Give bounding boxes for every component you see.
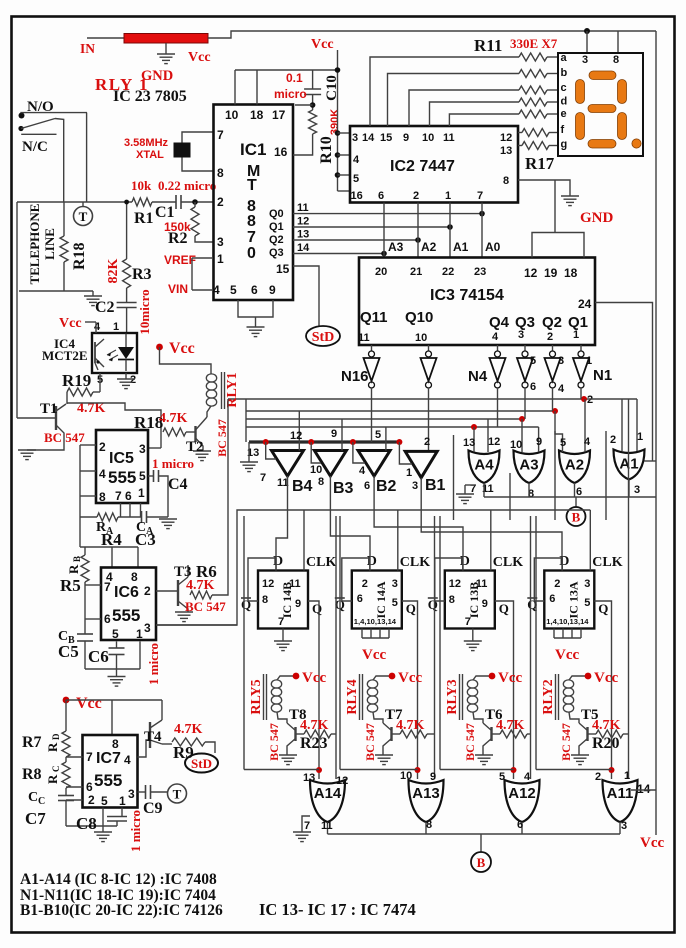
svg-text:15: 15 <box>276 262 290 276</box>
svg-text:StD: StD <box>312 330 335 345</box>
svg-text:IC 13A: IC 13A <box>566 581 580 618</box>
svg-text:11: 11 <box>289 578 301 590</box>
svg-text:A13: A13 <box>412 785 440 802</box>
svg-text:1: 1 <box>637 431 643 443</box>
svg-text:5: 5 <box>392 597 398 609</box>
svg-text:11: 11 <box>321 820 333 832</box>
svg-text:C: C <box>38 796 45 807</box>
svg-text:5: 5 <box>230 283 237 297</box>
svg-text:T4: T4 <box>144 729 162 745</box>
svg-text:R8: R8 <box>22 766 42 783</box>
svg-text:12: 12 <box>297 216 309 228</box>
svg-text:A3: A3 <box>388 240 404 254</box>
svg-text:9: 9 <box>331 428 337 440</box>
svg-text:4: 4 <box>492 331 499 343</box>
svg-text:12: 12 <box>524 266 538 280</box>
svg-text:T1: T1 <box>40 401 58 417</box>
svg-text:micro: micro <box>274 87 307 101</box>
svg-text:0.1: 0.1 <box>286 71 303 85</box>
svg-text:RLY4: RLY4 <box>345 679 360 714</box>
svg-text:10: 10 <box>225 108 239 122</box>
svg-text:5: 5 <box>112 627 119 641</box>
svg-text:1: 1 <box>113 321 119 333</box>
svg-text:Q11: Q11 <box>360 309 388 326</box>
svg-text:D: D <box>367 554 377 569</box>
svg-text:RLY5: RLY5 <box>249 679 264 714</box>
svg-text:A2: A2 <box>565 457 584 474</box>
svg-text:T2: T2 <box>186 439 204 455</box>
svg-text:b: b <box>561 67 568 79</box>
svg-text:4: 4 <box>353 154 360 166</box>
svg-text:11: 11 <box>297 202 309 214</box>
svg-text:C: C <box>51 766 61 773</box>
svg-text:5: 5 <box>353 173 359 185</box>
svg-text:B1: B1 <box>425 477 446 494</box>
svg-text:4: 4 <box>584 436 591 448</box>
svg-text:24: 24 <box>578 297 592 311</box>
svg-text:R20: R20 <box>592 735 620 752</box>
svg-text:14: 14 <box>297 242 310 254</box>
svg-text:VREF: VREF <box>164 253 196 267</box>
svg-text:5: 5 <box>101 794 108 808</box>
svg-text:7: 7 <box>217 128 224 142</box>
svg-text:6: 6 <box>251 283 258 297</box>
svg-text:7: 7 <box>260 472 266 484</box>
svg-text:2: 2 <box>595 771 601 783</box>
svg-text:21: 21 <box>410 266 422 278</box>
svg-text:Vcc: Vcc <box>169 340 195 357</box>
svg-text:2: 2 <box>547 331 553 343</box>
svg-text:A2: A2 <box>421 240 437 254</box>
svg-text:A1: A1 <box>453 240 469 254</box>
svg-text:IC2 7447: IC2 7447 <box>390 158 455 175</box>
svg-text:5: 5 <box>375 429 381 441</box>
svg-text:19: 19 <box>544 266 558 280</box>
svg-text:10: 10 <box>415 332 427 344</box>
svg-text:Q1: Q1 <box>269 221 284 233</box>
svg-text:C: C <box>28 790 38 805</box>
svg-text:B: B <box>477 855 486 870</box>
svg-text:6: 6 <box>125 489 132 503</box>
svg-text:IC 13- IC 17 : IC 7474: IC 13- IC 17 : IC 7474 <box>259 900 416 919</box>
svg-text:9: 9 <box>482 598 488 610</box>
svg-text:RLY1: RLY1 <box>225 372 240 407</box>
svg-text:6: 6 <box>549 593 555 605</box>
svg-text:Vcc: Vcc <box>59 316 82 331</box>
svg-text:4: 4 <box>558 383 565 395</box>
svg-text:d: d <box>561 96 568 108</box>
svg-text:T: T <box>79 209 88 224</box>
svg-text:0: 0 <box>247 245 256 262</box>
svg-text:7: 7 <box>115 489 122 503</box>
svg-text:D: D <box>460 554 470 569</box>
svg-text:e: e <box>561 108 567 120</box>
svg-text:C5: C5 <box>58 642 79 661</box>
svg-text:13: 13 <box>303 772 315 784</box>
svg-text:6: 6 <box>517 819 523 831</box>
svg-text:330E X7: 330E X7 <box>510 36 558 51</box>
svg-text:CLK: CLK <box>592 555 622 570</box>
svg-text:6: 6 <box>86 780 93 794</box>
svg-text:Vcc: Vcc <box>311 37 334 52</box>
svg-text:BC 547: BC 547 <box>44 430 85 445</box>
svg-text:A0: A0 <box>485 240 501 254</box>
svg-text:B3: B3 <box>333 480 354 497</box>
svg-text:BC 547: BC 547 <box>463 723 477 761</box>
svg-text:3: 3 <box>558 355 564 367</box>
svg-text:8: 8 <box>99 490 106 504</box>
svg-text:4.7K: 4.7K <box>159 411 188 426</box>
svg-text:2: 2 <box>413 190 419 202</box>
svg-text:Q: Q <box>312 601 322 616</box>
svg-text:8: 8 <box>262 594 268 606</box>
svg-text:D: D <box>51 733 61 740</box>
svg-text:1: 1 <box>138 486 145 500</box>
svg-text:23: 23 <box>474 266 486 278</box>
svg-text:IC3 74154: IC3 74154 <box>430 287 504 304</box>
svg-text:VIN: VIN <box>168 282 188 296</box>
svg-text:555: 555 <box>108 468 136 487</box>
svg-text:1: 1 <box>624 770 630 782</box>
svg-text:IC1: IC1 <box>240 140 266 159</box>
svg-text:C3: C3 <box>135 530 156 549</box>
svg-text:3: 3 <box>412 480 418 492</box>
svg-text:10k: 10k <box>131 178 152 193</box>
svg-text:Vcc: Vcc <box>398 670 422 686</box>
svg-text:2: 2 <box>99 440 106 454</box>
svg-text:D: D <box>273 554 283 569</box>
svg-text:C8: C8 <box>76 814 97 833</box>
svg-text:T: T <box>247 177 257 194</box>
svg-text:BC 547: BC 547 <box>559 723 573 761</box>
svg-text:13: 13 <box>297 229 309 241</box>
svg-text:8: 8 <box>318 476 324 488</box>
svg-text:17: 17 <box>272 108 286 122</box>
svg-text:8: 8 <box>613 54 619 66</box>
svg-text:BC 547: BC 547 <box>215 419 229 457</box>
svg-text:T: T <box>173 787 182 802</box>
svg-text:5: 5 <box>139 469 146 483</box>
svg-text:16: 16 <box>351 190 363 202</box>
svg-text:g: g <box>561 139 568 151</box>
svg-text:8: 8 <box>503 175 509 187</box>
svg-text:12: 12 <box>290 430 302 442</box>
svg-text:7: 7 <box>104 580 111 594</box>
svg-text:6: 6 <box>378 190 384 202</box>
svg-text:R1: R1 <box>134 210 154 227</box>
svg-text:8: 8 <box>247 213 256 230</box>
svg-text:B: B <box>72 556 82 562</box>
svg-text:C7: C7 <box>25 809 46 828</box>
svg-text:RLY 1: RLY 1 <box>95 75 149 94</box>
svg-text:CLK: CLK <box>493 555 523 570</box>
svg-text:Vcc: Vcc <box>498 670 522 686</box>
svg-text:15: 15 <box>380 132 392 144</box>
svg-text:4.7K: 4.7K <box>174 722 203 737</box>
svg-text:6: 6 <box>104 612 111 626</box>
svg-text:5: 5 <box>499 771 505 783</box>
svg-text:10micro: 10micro <box>137 289 152 334</box>
svg-text:3: 3 <box>584 578 590 590</box>
svg-text:9: 9 <box>403 132 409 144</box>
svg-text:IC7: IC7 <box>96 750 121 767</box>
svg-text:10: 10 <box>510 439 522 451</box>
svg-text:3: 3 <box>217 235 224 249</box>
svg-text:Q3: Q3 <box>269 247 284 259</box>
svg-text:4: 4 <box>524 771 531 783</box>
svg-text:2: 2 <box>587 394 593 406</box>
svg-text:B1-B10(IC 20-IC 22):IC 74126: B1-B10(IC 20-IC 22):IC 74126 <box>20 902 223 919</box>
svg-text:4: 4 <box>359 465 366 477</box>
svg-text:9: 9 <box>536 436 542 448</box>
svg-text:6: 6 <box>530 381 536 393</box>
svg-text:20: 20 <box>375 266 387 278</box>
svg-text:10: 10 <box>400 770 412 782</box>
svg-text:A11: A11 <box>607 785 634 802</box>
svg-text:R23: R23 <box>300 735 328 752</box>
svg-text:Q10: Q10 <box>405 309 433 326</box>
svg-text:R3: R3 <box>132 266 152 283</box>
svg-text:3: 3 <box>128 787 135 801</box>
svg-text:C1: C1 <box>155 204 175 221</box>
svg-text:9: 9 <box>430 771 436 783</box>
svg-text:2: 2 <box>424 436 430 448</box>
svg-text:Q: Q <box>598 601 608 616</box>
svg-text:14: 14 <box>362 132 375 144</box>
svg-text:3: 3 <box>352 132 358 144</box>
svg-text:Vcc: Vcc <box>76 695 102 712</box>
svg-text:C2: C2 <box>95 299 115 316</box>
svg-text:7: 7 <box>278 616 284 628</box>
svg-text:N1: N1 <box>593 367 612 384</box>
svg-text:12: 12 <box>500 132 512 144</box>
svg-text:4: 4 <box>213 283 220 297</box>
svg-text:555: 555 <box>94 771 122 790</box>
svg-text:10: 10 <box>310 464 322 476</box>
svg-text:MCT2E: MCT2E <box>42 348 88 363</box>
svg-text:R4: R4 <box>101 530 122 549</box>
svg-text:18: 18 <box>564 266 578 280</box>
svg-text:IC5: IC5 <box>109 450 134 467</box>
svg-text:7: 7 <box>86 750 93 764</box>
svg-text:R: R <box>45 774 60 784</box>
svg-text:A3: A3 <box>519 457 538 474</box>
svg-text:8: 8 <box>131 570 138 584</box>
svg-text:IN: IN <box>80 41 95 56</box>
svg-text:1: 1 <box>586 355 592 367</box>
svg-text:C4: C4 <box>168 476 188 493</box>
svg-text:1: 1 <box>217 252 224 266</box>
svg-text:22: 22 <box>442 266 454 278</box>
svg-text:IC 14A: IC 14A <box>374 581 388 618</box>
svg-text:8: 8 <box>426 819 432 831</box>
svg-text:R11: R11 <box>474 36 502 55</box>
svg-text:B2: B2 <box>376 478 397 495</box>
svg-text:N16: N16 <box>341 368 369 385</box>
svg-text:RLY3: RLY3 <box>445 679 460 714</box>
svg-text:Q2: Q2 <box>269 234 284 246</box>
svg-text:18: 18 <box>250 108 264 122</box>
svg-text:11: 11 <box>476 578 488 590</box>
svg-text:A12: A12 <box>508 785 536 802</box>
svg-text:R10: R10 <box>318 136 335 164</box>
svg-text:2: 2 <box>217 195 224 209</box>
svg-text:A14: A14 <box>314 785 342 802</box>
svg-text:R17: R17 <box>525 154 555 173</box>
svg-text:R18: R18 <box>71 242 88 270</box>
svg-text:6: 6 <box>576 486 582 498</box>
svg-text:2: 2 <box>610 434 616 446</box>
svg-text:IC6: IC6 <box>114 584 139 601</box>
svg-text:1 micro: 1 micro <box>152 456 194 471</box>
svg-text:Vcc: Vcc <box>362 647 386 663</box>
svg-text:5: 5 <box>530 355 536 367</box>
svg-text:f: f <box>561 124 565 136</box>
svg-text:C9: C9 <box>143 800 163 817</box>
svg-text:D: D <box>559 554 569 569</box>
svg-text:R2: R2 <box>168 230 188 247</box>
svg-text:2: 2 <box>362 578 368 590</box>
svg-text:5: 5 <box>560 437 566 449</box>
svg-text:3: 3 <box>582 54 588 66</box>
svg-text:8: 8 <box>112 737 119 751</box>
svg-text:555: 555 <box>112 606 140 625</box>
svg-text:1 micro: 1 micro <box>146 643 161 685</box>
svg-text:14: 14 <box>637 782 651 796</box>
svg-text:C6: C6 <box>88 647 109 666</box>
svg-text:5: 5 <box>584 597 590 609</box>
svg-text:BC 547: BC 547 <box>363 723 377 761</box>
svg-text:1: 1 <box>119 794 126 808</box>
svg-text:3: 3 <box>144 621 151 635</box>
svg-text:Q: Q <box>241 597 251 612</box>
svg-text:3: 3 <box>392 578 398 590</box>
svg-text:N4: N4 <box>468 368 488 385</box>
svg-text:A1-A14 (IC 8-IC 12) :IC 7408: A1-A14 (IC 8-IC 12) :IC 7408 <box>20 871 217 888</box>
svg-text:2: 2 <box>144 584 151 598</box>
svg-text:R19: R19 <box>62 371 91 390</box>
svg-text:c: c <box>561 82 567 94</box>
svg-text:8: 8 <box>217 166 224 180</box>
svg-text:XTAL: XTAL <box>136 149 164 161</box>
svg-text:6: 6 <box>357 593 363 605</box>
svg-text:3.58MHz: 3.58MHz <box>124 137 169 149</box>
svg-text:16: 16 <box>274 145 288 159</box>
svg-text:R5: R5 <box>60 576 81 595</box>
svg-text:4.7K: 4.7K <box>186 578 215 593</box>
svg-text:RLY2: RLY2 <box>541 679 556 714</box>
svg-text:1: 1 <box>406 467 412 479</box>
svg-text:0.22 micro: 0.22 micro <box>158 178 216 193</box>
svg-text:12: 12 <box>336 775 348 787</box>
svg-text:1: 1 <box>573 329 579 341</box>
svg-text:LINE: LINE <box>42 228 57 260</box>
svg-text:N/C: N/C <box>22 139 48 155</box>
svg-text:4: 4 <box>99 467 106 481</box>
svg-text:1: 1 <box>445 190 451 202</box>
svg-text:BC 547: BC 547 <box>185 599 226 614</box>
svg-text:3: 3 <box>621 820 627 832</box>
svg-text:12: 12 <box>488 436 500 448</box>
svg-text:Q: Q <box>406 601 416 616</box>
svg-text:7: 7 <box>304 820 310 832</box>
svg-text:B: B <box>572 510 581 525</box>
svg-text:7: 7 <box>477 190 483 202</box>
svg-text:12: 12 <box>449 578 461 590</box>
svg-text:R: R <box>66 564 81 574</box>
svg-text:Q: Q <box>499 601 509 616</box>
svg-text:CLK: CLK <box>306 555 336 570</box>
svg-text:7: 7 <box>247 229 256 246</box>
svg-text:BC 547: BC 547 <box>267 723 281 761</box>
svg-text:82K: 82K <box>106 258 121 283</box>
svg-text:A4: A4 <box>474 457 494 474</box>
svg-text:1,4,10,13,14: 1,4,10,13,14 <box>354 617 397 626</box>
svg-text:4: 4 <box>94 321 101 333</box>
svg-text:Vcc: Vcc <box>302 670 326 686</box>
svg-text:Q2: Q2 <box>542 314 562 331</box>
svg-text:1 micro: 1 micro <box>128 810 143 852</box>
svg-text:B4: B4 <box>292 478 313 495</box>
svg-text:11: 11 <box>443 132 455 144</box>
svg-text:Q: Q <box>428 597 438 612</box>
svg-text:StD: StD <box>191 756 212 771</box>
svg-text:10: 10 <box>422 132 434 144</box>
svg-text:Vcc: Vcc <box>188 50 211 65</box>
svg-text:2: 2 <box>88 793 95 807</box>
svg-text:2: 2 <box>554 578 560 590</box>
svg-text:GND: GND <box>580 210 614 226</box>
svg-text:11: 11 <box>358 332 370 344</box>
svg-text:Vcc: Vcc <box>640 835 664 851</box>
svg-text:Q4: Q4 <box>489 314 510 331</box>
svg-text:R: R <box>45 742 60 752</box>
svg-text:7: 7 <box>465 616 471 628</box>
svg-text:1: 1 <box>136 627 143 641</box>
svg-text:13: 13 <box>500 145 512 157</box>
svg-text:4: 4 <box>124 753 131 767</box>
svg-text:3: 3 <box>518 329 524 341</box>
svg-text:12: 12 <box>262 578 274 590</box>
svg-text:1,4,10,13,14: 1,4,10,13,14 <box>546 617 589 626</box>
svg-text:R7: R7 <box>22 734 42 751</box>
svg-text:6: 6 <box>364 480 370 492</box>
svg-text:8: 8 <box>449 594 455 606</box>
svg-text:9: 9 <box>269 283 276 297</box>
svg-text:Vcc: Vcc <box>594 670 618 686</box>
svg-text:TELEPHONE: TELEPHONE <box>27 204 42 285</box>
svg-text:Vcc: Vcc <box>555 647 579 663</box>
svg-text:9: 9 <box>295 598 301 610</box>
svg-text:13: 13 <box>463 437 475 449</box>
svg-text:3: 3 <box>139 442 146 456</box>
svg-text:a: a <box>561 52 568 64</box>
svg-text:Q0: Q0 <box>269 208 284 220</box>
svg-text:CLK: CLK <box>400 555 430 570</box>
svg-text:2: 2 <box>130 374 136 386</box>
svg-text:3: 3 <box>634 484 640 496</box>
